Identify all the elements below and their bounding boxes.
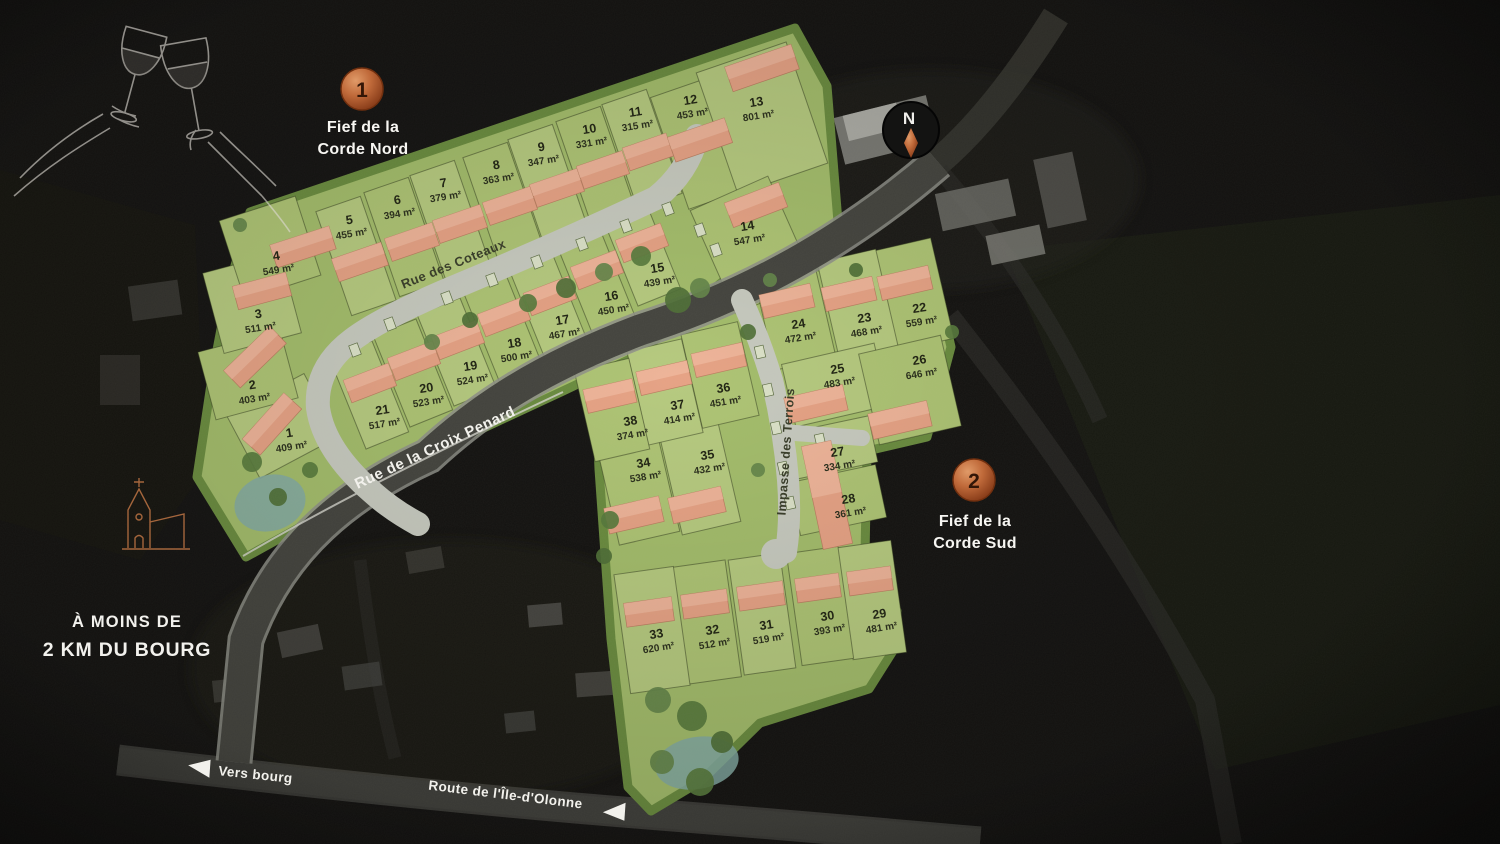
lot-number: 22 <box>911 300 927 316</box>
lot-number: 30 <box>819 608 835 624</box>
vignette <box>0 0 1500 844</box>
lot-number: 28 <box>840 491 856 507</box>
lot-number: 36 <box>715 380 731 396</box>
lot-number: 11 <box>628 104 643 120</box>
lot-number: 13 <box>748 94 764 110</box>
lot-number: 27 <box>829 444 845 460</box>
lot-number: 21 <box>374 402 390 418</box>
svg-text:Corde Nord: Corde Nord <box>318 141 409 158</box>
lot-number: 15 <box>649 260 665 276</box>
site-plan: 1409 m²2403 m²3511 m²4549 m²5455 m²6394 … <box>0 0 1500 844</box>
svg-text:Fief de la: Fief de la <box>939 513 1011 530</box>
lot-number: 10 <box>581 121 597 137</box>
lot-number: 19 <box>462 358 478 374</box>
svg-text:2: 2 <box>968 470 980 493</box>
lot-number: 18 <box>506 335 522 351</box>
lot-number: 37 <box>669 397 685 413</box>
lot-number: 23 <box>856 310 872 326</box>
lot-number: 31 <box>758 617 774 633</box>
lot-number: 17 <box>554 312 570 328</box>
lot-number: 32 <box>704 622 720 638</box>
lot-number: 33 <box>648 626 664 642</box>
compass: N <box>883 102 939 158</box>
lot-number: 25 <box>829 361 845 377</box>
svg-text:2 KM DU BOURG: 2 KM DU BOURG <box>43 639 212 661</box>
svg-text:À MOINS DE: À MOINS DE <box>72 612 182 631</box>
lot-number: 16 <box>603 288 619 304</box>
lot-number: 20 <box>418 380 434 396</box>
svg-text:Corde Sud: Corde Sud <box>933 535 1017 552</box>
compass-n-label: N <box>903 109 915 128</box>
lot-number: 26 <box>911 352 927 368</box>
lot-number: 24 <box>790 316 806 332</box>
lot-number: 14 <box>739 218 755 234</box>
lot-number: 34 <box>635 455 651 471</box>
lot-number: 35 <box>699 447 715 463</box>
lot-number: 12 <box>682 92 698 108</box>
lot-number: 29 <box>871 606 887 622</box>
lot-number: 38 <box>622 413 638 429</box>
svg-text:Fief de la: Fief de la <box>327 119 399 136</box>
svg-text:1: 1 <box>356 79 368 102</box>
